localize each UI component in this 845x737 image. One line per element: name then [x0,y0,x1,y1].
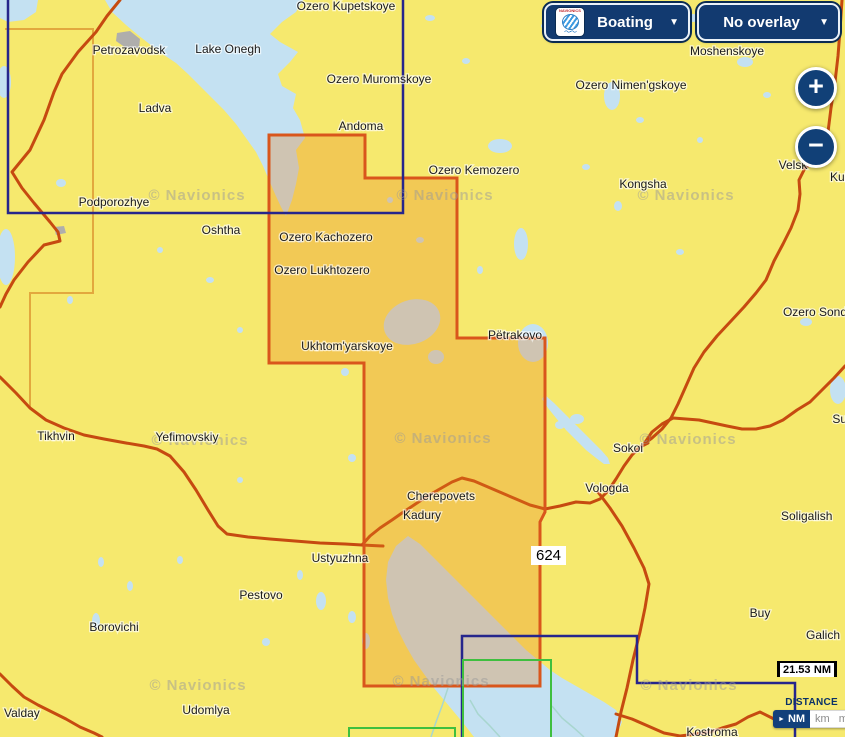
small-lake [348,611,356,623]
zoom-out-button[interactable]: − [795,126,837,168]
unit-mi-button[interactable]: mi [839,713,845,725]
map-label: Andoma [339,119,384,133]
unit-alt-group: km mi [810,710,845,728]
selected-marker-icon: ► [778,716,785,723]
logo-globe-icon [562,14,579,30]
small-lake [237,327,243,333]
small-lake [297,570,303,580]
zoom-in-button[interactable]: + [795,67,837,109]
chevron-down-icon: ▼ [669,17,679,28]
small-lake [763,92,771,98]
map-label: Podporozhye [79,195,150,209]
chart-region-number-badge[interactable]: 624 [531,546,566,565]
copyright-watermark: © Navionics [149,677,246,694]
map-label: Ozero Lukhtozero [274,263,370,277]
small-lake [237,477,243,483]
map-label: Borovichi [89,620,138,634]
map-label: Sokoi [613,441,643,455]
map-label: Petrozavodsk [93,43,167,57]
map-label: Ozero Kachozero [279,230,373,244]
map-label: Buy [750,606,771,620]
plus-icon: + [808,71,824,102]
map-label: Ozero Kemozero [429,163,520,177]
map-label: Tikhvin [37,429,75,443]
map-label: Ozero Nimen'gskoye [576,78,687,92]
map-label: Lake Onegh [195,42,260,56]
small-lake [157,247,163,253]
minus-icon: − [808,130,824,161]
copyright-watermark: © Navionics [396,187,493,204]
unit-km-button[interactable]: km [815,713,830,725]
map-label: Galich [806,628,840,642]
small-lake [477,266,483,274]
small-lake [555,421,565,429]
small-lake [262,638,270,646]
map-label: Kulo [830,170,845,184]
small-lake [98,557,104,567]
unit-nm-label: NM [788,713,805,725]
small-lake [348,454,356,462]
map-label: Kadury [403,508,441,522]
small-lake [341,368,349,376]
map-label: Pëtrakovo [488,328,542,342]
overlay-label: No overlay [708,14,815,31]
small-lake [316,592,326,610]
copyright-watermark: © Navionics [640,677,737,694]
map-label: Cherepovets [407,489,475,503]
small-lake [127,581,133,591]
map-label: Ozero Muromskoye [327,72,432,86]
copyright-watermark: © Navionics [392,673,489,690]
small-lake [570,414,584,424]
map-scale-bar: 21.53 NM [777,661,837,677]
scale-unit: NM [814,664,831,676]
small-lake [56,179,66,187]
small-lake [206,277,214,283]
map-label: Yefimovskiy [156,430,219,444]
small-lake [614,201,622,211]
map-label: Kongsha [619,177,667,191]
map-label: Pestovo [239,588,283,602]
map-label: Ukhtom'yarskoye [301,339,393,353]
map-label: Ozero Sond [783,305,845,319]
map-label: Udomlya [182,703,230,717]
chart-mode-dropdown[interactable]: NAVIONICS 〜〜 Boating ▼ [544,3,690,41]
small-lake [425,15,435,21]
map-label: Su [832,412,845,426]
distance-unit-switcher: ► NM km mi [773,710,845,728]
map-label: Vologda [585,481,629,495]
logo-waves-icon: 〜〜 [564,30,576,36]
small-lake [462,58,470,64]
chevron-down-icon: ▼ [819,17,829,28]
overlay-dropdown[interactable]: No overlay ▼ [697,3,840,41]
copyright-watermark: © Navionics [394,430,491,447]
navionics-chart-viewer: © Navionics© Navionics© Navionics© Navio… [0,0,845,737]
small-lake [636,117,644,123]
small-lake [67,296,73,304]
logo-brand-text: NAVIONICS [559,8,581,13]
small-lake [582,164,590,170]
navionics-logo-icon: NAVIONICS 〜〜 [555,7,585,37]
small-lake [177,556,183,564]
map-label: Moshenskoye [690,44,764,58]
map-label: Ustyuzhna [312,551,369,565]
unit-nm-button[interactable]: ► NM [773,710,810,728]
small-lake [488,139,512,153]
small-lake [676,249,684,255]
small-lake [800,318,812,326]
map-label: Ozero Kupetskoye [297,0,396,13]
distance-panel-title: DISTANCE [760,697,838,708]
small-lake [514,228,528,260]
copyright-watermark: © Navionics [148,187,245,204]
copyright-watermark: © Navionics [639,431,736,448]
small-lake [737,57,753,67]
map-label: Valday [4,706,40,720]
map-label: Ladva [139,101,172,115]
scale-value: 21.53 [783,664,811,676]
chart-mode-label: Boating [585,14,665,31]
map-canvas[interactable]: © Navionics© Navionics© Navionics© Navio… [0,0,845,737]
small-lake [697,137,703,143]
map-label: Kostroma [686,725,738,737]
map-label: Oshtha [202,223,241,237]
map-label: Soligalish [781,509,832,523]
